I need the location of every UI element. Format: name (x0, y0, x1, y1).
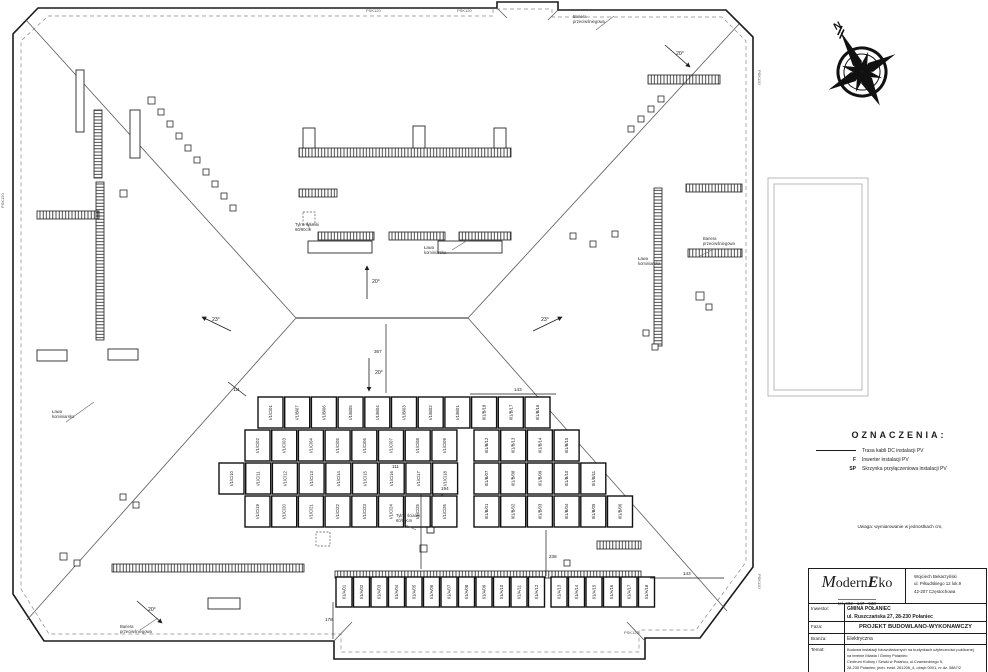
pv-panel-label: I/1/C/19 (255, 504, 260, 519)
pv-panel-label: I/1/B/01 (455, 405, 460, 420)
compass-north-label: N (832, 20, 844, 33)
pv-panel-label: I/1/A/03 (377, 584, 382, 599)
roof-vent-square (652, 344, 658, 350)
dimension-value: 111 (233, 387, 240, 392)
pv-panel-label: I/1/C/06 (362, 438, 367, 453)
pv-panel-label: I/1/A/10 (499, 584, 504, 599)
pv-panel-label: I/1/C/26 (442, 504, 447, 519)
legend: OZNACZENIA: Trasa kabli DC instalacji PV… (810, 430, 988, 475)
roof-vent-square (564, 560, 570, 566)
pv-panel-label: I/1/A/13 (557, 584, 562, 599)
roof-vent-square (158, 109, 164, 115)
roof-element-rect (303, 128, 315, 148)
pv-panel-label: I/1/C/20 (282, 504, 287, 519)
roof-walkway-strip (688, 249, 742, 257)
pv-panel-label: I/1/C/03 (282, 438, 287, 453)
dimension-value: 178 (325, 617, 333, 622)
slope-degree-label: 20° (148, 607, 156, 613)
roof-element-rect (438, 241, 502, 253)
legend-item-label: Inwerter instalacji PV (862, 457, 909, 463)
pv-panel-label: II/1/B/03 (537, 503, 542, 519)
investor-value: GMINA POŁANIEC ul. Ruszczańska 27, 28-23… (845, 604, 986, 621)
roof-vent-square (185, 145, 191, 151)
pv-panel-label: I/1/C/13 (309, 471, 314, 486)
roof-element-rect (208, 598, 240, 609)
roof-vent-square (133, 502, 139, 508)
roof-vent-square (194, 157, 200, 163)
designer-address: Wojciech Bekarzyński ul. Piłsudskiego 12… (906, 569, 986, 603)
pv-panel-label: II/1/B/15 (564, 437, 569, 453)
slope-degree-label: 20° (676, 51, 684, 57)
roof-vent-square (120, 190, 127, 197)
pv-panel-label: I/1/C/22 (335, 504, 340, 519)
subject-value: Budowa instalacji fotowoltaicznych na bu… (845, 645, 986, 672)
roof-opening-dashed (316, 532, 330, 546)
dimension-value: 143 (683, 571, 691, 576)
pv-panel-label: II/1/B/09 (537, 470, 542, 486)
dimension-value: 111 (392, 464, 399, 469)
pv-panel-label: I/1/A/18 (644, 584, 649, 599)
edge-marker-label: PSK120 (457, 8, 472, 13)
pv-panel-label: I/1/A/04 (394, 584, 399, 599)
pv-panel-label: I/1/A/14 (574, 584, 579, 599)
pv-panel-label: I/1/B/04 (375, 405, 380, 420)
roof-walkway-strip (648, 75, 720, 84)
slope-degree-label: 23° (541, 317, 549, 323)
pv-panel-label: I/1/C/08 (415, 438, 420, 453)
roof-vent-square (120, 494, 126, 500)
roof-vent-square (230, 205, 236, 211)
roof-vent-square (212, 181, 218, 187)
pv-panel-label: I/1/B/02 (428, 405, 433, 420)
roof-vent-square (628, 126, 634, 132)
pv-panel-label: I/1/A/16 (609, 584, 614, 599)
pv-panel-label: I/1/C/01 (268, 405, 273, 420)
edge-marker-label: PSK120 (757, 574, 762, 589)
pv-panel-label: I/1/C/05 (335, 438, 340, 453)
roof-element-rect (130, 110, 140, 158)
pv-panel-label: I/1/C/10 (229, 471, 234, 486)
pv-panel-label: I/1/B/07 (295, 405, 300, 420)
edge-marker-label: PSK120 (757, 70, 762, 85)
investor-row: Inwestor: GMINA POŁANIEC ul. Ruszczańska… (809, 604, 986, 622)
pv-panel-label: I/1/C/04 (308, 438, 313, 453)
legend-item-label: Skrzynka przyłączeniowa instalacji PV (862, 466, 947, 472)
branch-label: Branża: (809, 634, 845, 644)
pv-panel-label: II/1/B/17 (508, 404, 513, 420)
pv-panel-label: II/1/B/04 (564, 503, 569, 519)
branch-value: Elektryczna (845, 634, 986, 644)
roof-walkway-strip (654, 188, 662, 346)
pv-panel-label: II/1/B/14 (537, 437, 542, 453)
pv-panel-label: II/1/B/05 (591, 503, 596, 519)
pv-panel-label: I/1/A/17 (627, 584, 632, 599)
roof-element-rect (37, 350, 67, 361)
pv-panel-label: I/1/C/11 (256, 471, 261, 486)
roof-vent-square (638, 116, 644, 122)
drawing-page: I/1/C/01I/1/B/07I/1/B/06I/1/B/05I/1/B/04… (0, 0, 988, 672)
roof-vent-square (612, 231, 618, 237)
pv-panel-label: I/1/B/03 (402, 405, 407, 420)
adjacent-structure-outline (768, 178, 868, 396)
roof-walkway-strip (96, 182, 104, 340)
pv-panel-label: I/1/C/24 (389, 504, 394, 519)
roof-element-rect (76, 70, 84, 132)
legend-item-junction-box: SP Skrzynka przyłączeniowa instalacji PV (810, 466, 988, 472)
pv-panel-label: I/1/C/23 (362, 504, 367, 519)
roof-element-rect (308, 241, 372, 253)
pv-panel-label: II/1/B/08 (511, 470, 516, 486)
roof-element-rect (108, 349, 138, 360)
roof-vent-square (570, 233, 576, 239)
roof-vent-square (203, 169, 209, 175)
pv-panel-label: I/1/B/06 (321, 405, 326, 420)
legend-item-cable: Trasa kabli DC instalacji PV (810, 448, 988, 454)
pv-panel-label: I/1/C/18 (443, 471, 448, 486)
roof-walkway-strip (318, 232, 374, 240)
pv-panel-label: I/1/A/05 (412, 584, 417, 599)
company-logo: ModernEko tel. 602 - 147 - 538 (809, 569, 906, 603)
roof-vent-square (590, 241, 596, 247)
pv-panel-label: I/1/C/02 (255, 438, 260, 453)
pv-panel-label: II/1/B/02 (511, 503, 516, 519)
dimension-value: 143 (514, 387, 522, 392)
pv-panel-label: II/1/B/12 (484, 437, 489, 453)
roof-element-rect (494, 128, 506, 148)
roof-annotation: Tylne ścianki60/80cm (295, 222, 319, 232)
roof-walkway-strip (37, 211, 99, 219)
roof-vent-square (74, 560, 80, 566)
roof-element-rect (413, 126, 425, 148)
pv-panel-label: II/1/B/13 (511, 437, 516, 453)
edge-marker-label: PSK120 (366, 8, 381, 13)
pv-panel-label: II/1/B/11 (591, 470, 596, 486)
leader-line (66, 402, 94, 422)
dimension-value: 367 (374, 349, 382, 354)
roof-walkway-strip (299, 148, 511, 157)
pv-panel-label: I/1/B/05 (348, 405, 353, 420)
units-note: Uwaga: wymiarowanie w jednostkach cm, (812, 524, 988, 529)
pv-panel-label: I/1/A/09 (482, 584, 487, 599)
phase-value: PROJEKT BUDOWLANO-WYKONAWCZY (845, 622, 986, 633)
compass-rose: N (802, 4, 914, 124)
pv-panel-label: I/1/A/07 (447, 584, 452, 599)
legend-item-inverter: F Inwerter instalacji PV (810, 457, 988, 463)
edge-marker-label: PSK120 (0, 193, 5, 208)
branch-row: Branża: Elektryczna (809, 634, 986, 645)
roof-vent-square (167, 121, 173, 127)
inverter-symbol: F (810, 457, 862, 463)
roof-vent-square (696, 292, 704, 300)
roof-walkway-strip (686, 184, 742, 192)
roof-vent-square (643, 330, 649, 336)
pv-panel-label: I/1/C/17 (416, 471, 421, 486)
cable-line-symbol (810, 448, 862, 454)
pv-panel-label: I/1/A/06 (429, 584, 434, 599)
investor-label: Inwestor: (809, 604, 845, 621)
roof-walkway-strip (459, 232, 511, 240)
pv-panel-label: I/1/A/01 (342, 584, 347, 599)
pv-panel-label: I/1/C/15 (363, 471, 368, 486)
legend-item-label: Trasa kabli DC instalacji PV (862, 448, 924, 454)
pv-panel-label: I/1/C/16 (389, 471, 394, 486)
dimension-value: 194 (441, 486, 449, 491)
pv-panel-label: I/1/C/14 (336, 471, 341, 486)
dimension-value: 238 (549, 554, 557, 559)
pv-panel-label: II/1/B/10 (564, 470, 569, 486)
phase-row: Faza: PROJEKT BUDOWLANO-WYKONAWCZY (809, 622, 986, 634)
pv-panel-label: I/1/A/08 (464, 584, 469, 599)
subject-label: Temat: (809, 645, 845, 672)
pv-panel-label: I/1/C/12 (282, 471, 287, 486)
roof-walkway-strip (597, 541, 641, 549)
edge-marker-label: PSK120 (624, 630, 639, 635)
slope-degree-label: 23° (212, 317, 220, 323)
legend-title: OZNACZENIA: (810, 430, 988, 440)
roof-walkway-strip (112, 564, 304, 572)
pv-panel-label: I/1/A/11 (517, 584, 522, 599)
roof-vent-square (658, 96, 664, 102)
roof-annotation: Barieraprzeciwśniegowa (573, 14, 606, 24)
pv-panel-label: II/1/B/07 (484, 470, 489, 486)
roof-annotation: Barieraprzeciwśniegowa (703, 236, 736, 246)
roof-vent-square (648, 106, 654, 112)
logo-text: M (822, 572, 836, 591)
roof-annotation: Ławakominiarska (52, 409, 75, 419)
roof-outline (13, 2, 753, 659)
roof-vent-square (148, 97, 155, 104)
pv-panel-label: I/1/A/02 (359, 584, 364, 599)
pv-panel-label: I/1/C/09 (442, 438, 447, 453)
pv-panel-label: II/1/B/01 (484, 503, 489, 519)
pv-panel-label: I/1/C/21 (308, 504, 313, 519)
pv-panel-label: II/1/B/16 (535, 404, 540, 420)
pv-panel-label: II/1/B/06 (618, 503, 623, 519)
adjacent-structure-outline (774, 184, 862, 390)
title-block: ModernEko tel. 602 - 147 - 538 Wojciech … (808, 568, 987, 672)
roof-vent-square (706, 304, 712, 310)
subject-row: Temat: Budowa instalacji fotowoltaicznyc… (809, 645, 986, 672)
phase-label: Faza: (809, 622, 845, 633)
roof-walkway-strip (389, 232, 445, 240)
roof-offset-dashed (21, 9, 746, 652)
pv-panel-label: II/1/B/18 (482, 404, 487, 420)
slope-degree-label: 20° (372, 279, 380, 285)
roof-walkway-strip (94, 110, 102, 178)
pv-panel-label: I/1/A/12 (534, 584, 539, 599)
slope-degree-label: 20° (375, 370, 383, 376)
pv-panel-label: I/1/C/07 (389, 438, 394, 453)
title-block-header: ModernEko tel. 602 - 147 - 538 Wojciech … (809, 569, 986, 604)
pv-panel-label: I/1/A/15 (592, 584, 597, 599)
roof-vent-square (221, 193, 227, 199)
roof-walkway-strip (299, 189, 337, 197)
roof-annotation: Barieraprzeciwśniegowa (120, 624, 153, 634)
junction-box-symbol: SP (810, 466, 862, 472)
roof-vent-square (176, 133, 182, 139)
roof-vent-square (60, 553, 67, 560)
